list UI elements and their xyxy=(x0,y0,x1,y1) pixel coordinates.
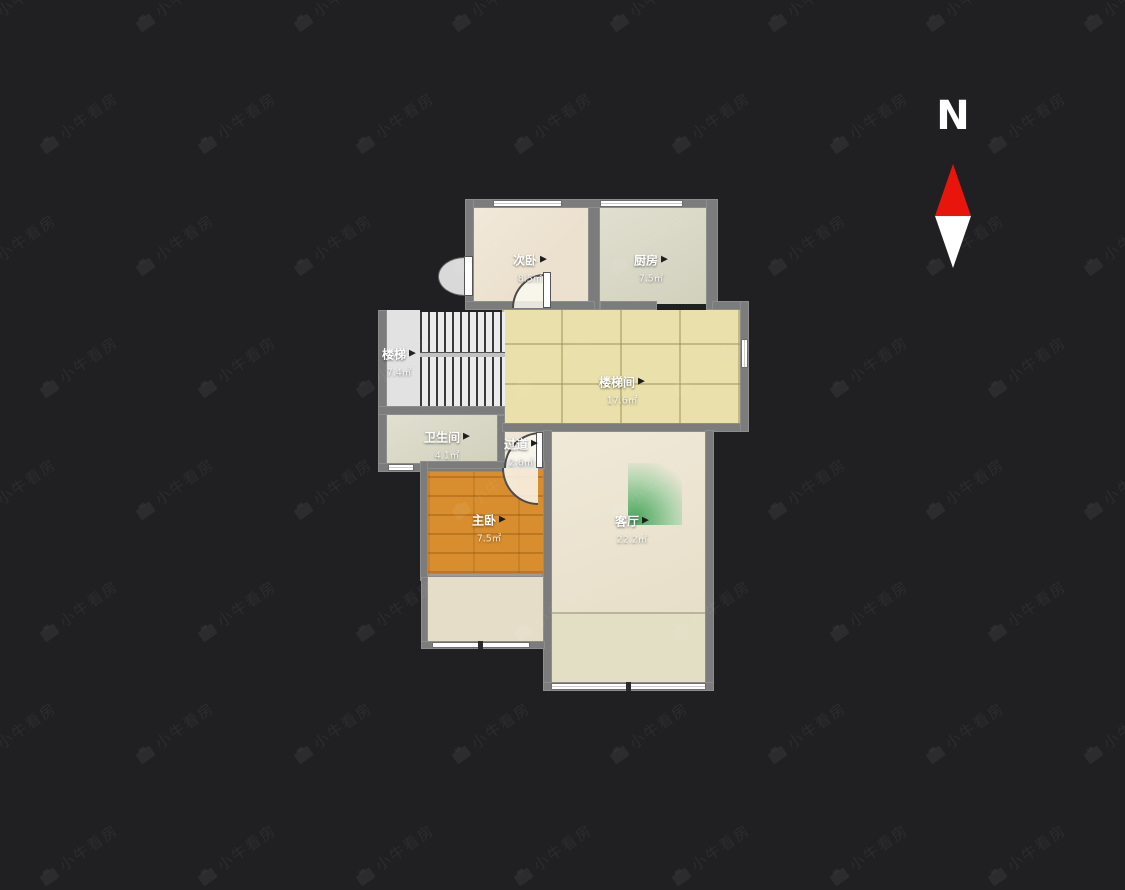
stairs-lower-flight xyxy=(420,357,505,407)
wall xyxy=(600,301,657,310)
compass-needle-south xyxy=(935,216,971,268)
window-tick xyxy=(626,682,631,691)
label-master-bedroom: 主卧▶ 7.5㎡ xyxy=(472,512,506,545)
pointer-icon: ▶ xyxy=(638,378,645,387)
camera-icon xyxy=(667,862,695,890)
wall xyxy=(378,310,387,472)
stairs-upper-flight xyxy=(420,312,505,352)
label-hallway: 过道▶ 2.6㎡ xyxy=(504,436,538,469)
window-tick xyxy=(478,641,483,649)
label-living-room: 客厅▶ 22.2㎡ xyxy=(615,513,649,546)
pointer-icon: ▶ xyxy=(463,433,470,442)
floorplan-screenshot: { "app": { "watermark_text": "小牛看房", "wa… xyxy=(0,0,1125,844)
area-hallway: 2.6㎡ xyxy=(504,455,538,469)
compass-north-label: N xyxy=(918,96,988,136)
label-secondary-bedroom: 次卧▶ 8.5㎡ xyxy=(513,252,547,285)
wall xyxy=(378,406,505,415)
pointer-icon: ▶ xyxy=(540,256,547,265)
label-stairwell: 楼梯间▶ 17.6㎡ xyxy=(599,374,645,407)
label-bathroom: 卫生间▶ 4.1㎡ xyxy=(424,429,470,462)
label-kitchen: 厨房▶ 7.5㎡ xyxy=(634,252,668,285)
area-kitchen: 7.5㎡ xyxy=(634,271,668,285)
exterior-door-swing xyxy=(438,257,465,296)
area-master-bedroom: 7.5㎡ xyxy=(472,531,506,545)
window xyxy=(741,339,748,368)
pointer-icon: ▶ xyxy=(661,256,668,265)
wall xyxy=(588,207,600,310)
wall xyxy=(543,430,552,690)
camera-icon xyxy=(351,862,379,890)
wall xyxy=(705,430,714,690)
area-stairs: 7.4㎡ xyxy=(382,365,416,379)
area-stairwell: 17.6㎡ xyxy=(599,393,645,407)
window xyxy=(600,200,683,207)
pointer-icon: ▶ xyxy=(531,440,538,449)
wall xyxy=(421,577,428,649)
camera-icon xyxy=(193,862,221,890)
compass-needle-north xyxy=(935,164,971,216)
camera-icon xyxy=(35,862,63,890)
area-living-room: 22.2㎡ xyxy=(615,532,649,546)
pointer-icon: ▶ xyxy=(409,350,416,359)
area-secondary-bedroom: 8.5㎡ xyxy=(513,271,547,285)
room-stairwell xyxy=(502,310,741,425)
exterior-door-leaf xyxy=(464,256,473,296)
camera-icon xyxy=(509,862,537,890)
wall xyxy=(428,573,543,577)
room-living-lower xyxy=(551,612,705,684)
camera-icon xyxy=(825,862,853,890)
pointer-icon: ▶ xyxy=(642,517,649,526)
label-stairs: 楼梯▶ 7.4㎡ xyxy=(382,346,416,379)
camera-icon xyxy=(983,862,1011,890)
pointer-icon: ▶ xyxy=(499,516,506,525)
window xyxy=(493,200,562,207)
compass: N xyxy=(918,96,988,281)
window xyxy=(388,464,414,471)
wall xyxy=(706,199,718,310)
wall xyxy=(420,461,428,581)
room-balcony xyxy=(428,577,543,641)
area-bathroom: 4.1㎡ xyxy=(424,448,470,462)
